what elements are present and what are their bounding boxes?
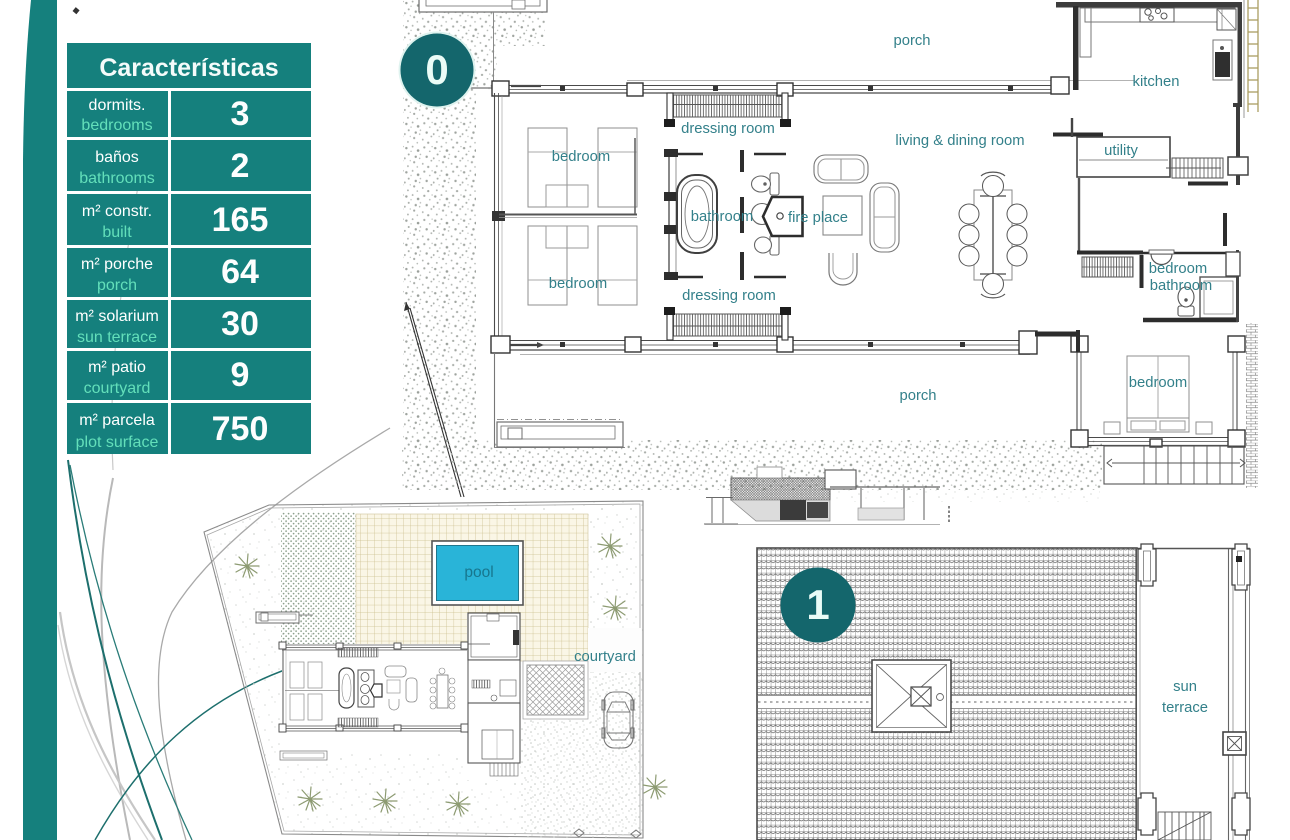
svg-text:m² constr.: m² constr. xyxy=(82,203,152,220)
svg-text:1: 1 xyxy=(806,581,829,628)
svg-text:3: 3 xyxy=(231,95,250,133)
svg-text:porch: porch xyxy=(899,388,936,404)
svg-text:built: built xyxy=(102,224,132,241)
svg-text:bathrooms: bathrooms xyxy=(79,170,155,187)
svg-text:utility: utility xyxy=(1104,143,1138,159)
svg-text:dressing room: dressing room xyxy=(682,288,776,304)
svg-text:bedroom: bedroom xyxy=(549,276,607,292)
svg-text:pool: pool xyxy=(464,564,493,581)
svg-text:fire place: fire place xyxy=(788,210,848,226)
svg-text:terrace: terrace xyxy=(1162,700,1208,716)
svg-text:bedroom: bedroom xyxy=(552,149,610,165)
svg-text:plot surface: plot surface xyxy=(76,434,159,451)
svg-text:bedrooms: bedrooms xyxy=(81,117,152,134)
svg-text:m² patio: m² patio xyxy=(88,359,146,376)
svg-text:m² solarium: m² solarium xyxy=(75,308,159,325)
svg-text:courtyard: courtyard xyxy=(574,649,636,665)
svg-text:30: 30 xyxy=(221,305,259,343)
svg-text:kitchen: kitchen xyxy=(1133,74,1180,90)
svg-text:sun terrace: sun terrace xyxy=(77,329,157,346)
svg-text:dormits.: dormits. xyxy=(89,97,146,114)
svg-text:porch: porch xyxy=(893,33,930,49)
svg-text:64: 64 xyxy=(221,253,259,291)
svg-text:165: 165 xyxy=(212,201,269,239)
svg-text:2: 2 xyxy=(231,147,250,185)
svg-text:bedroom: bedroom xyxy=(1149,261,1207,277)
svg-text:m² parcela: m² parcela xyxy=(79,412,155,429)
svg-text:m² porche: m² porche xyxy=(81,256,153,273)
svg-text:courtyard: courtyard xyxy=(84,380,151,397)
svg-text:Características: Características xyxy=(99,54,278,82)
svg-text:750: 750 xyxy=(212,410,269,448)
svg-text:porch: porch xyxy=(97,277,137,294)
svg-text:baños: baños xyxy=(95,149,139,166)
svg-text:bathroom: bathroom xyxy=(1150,278,1213,294)
svg-text:9: 9 xyxy=(231,356,250,394)
svg-text:bedroom: bedroom xyxy=(1129,375,1187,391)
svg-text:dressing room: dressing room xyxy=(681,121,775,137)
svg-text:0: 0 xyxy=(425,46,448,93)
svg-text:bathroom: bathroom xyxy=(691,209,754,225)
svg-text:sun: sun xyxy=(1173,679,1197,695)
svg-text:living & dining room: living & dining room xyxy=(895,133,1024,149)
